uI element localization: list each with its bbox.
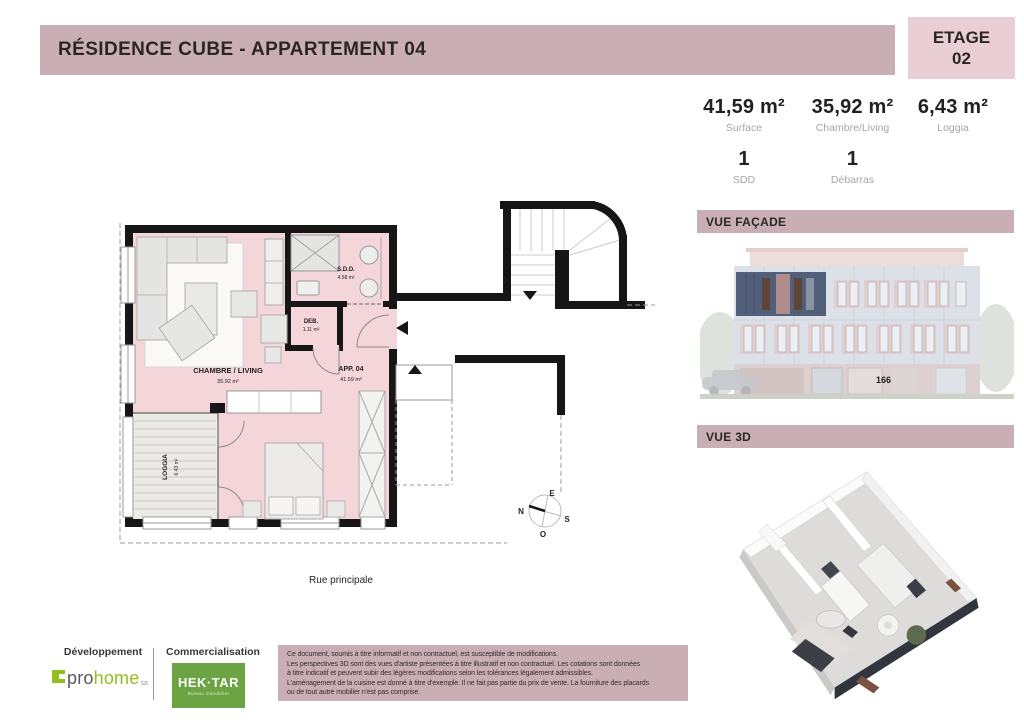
exterior-court (396, 365, 452, 485)
stat-debarras-label: Débarras (831, 174, 874, 186)
stat-debarras: 1 Débarras (800, 148, 905, 186)
room-app-area: 41.59 m² (340, 377, 362, 383)
vue3d-section-title: VUE 3D (697, 430, 751, 444)
stat-loggia-value: 6,43 m² (918, 96, 988, 119)
prohome-logo-home: home (94, 668, 140, 689)
facade-ground-floor: 166 (734, 364, 980, 394)
wardrobe (359, 391, 385, 517)
stat-surface-value: 41,59 m² (703, 96, 785, 119)
floor-badge-label: ETAGE (933, 27, 990, 48)
hektar-logo-text: HEK·TAR (178, 675, 239, 690)
corridor-area (389, 301, 557, 357)
floor-plan: CHAMBRE / LIVING 35.92 m² S.D.D. 4.58 m²… (115, 195, 655, 595)
room-loggia-area: 6.43 m² (174, 458, 180, 475)
floor-plan-svg: CHAMBRE / LIVING 35.92 m² S.D.D. 4.58 m²… (115, 195, 655, 595)
stat-surface: 41,59 m² Surface (688, 96, 800, 134)
room-sdd-name: S.D.D. (337, 267, 355, 273)
dining-table-3d (816, 611, 845, 629)
stat-surface-label: Surface (726, 122, 762, 134)
stats-row-counts: 1 SDD 1 Débarras (688, 148, 1018, 186)
stat-chambre-label: Chambre/Living (816, 122, 890, 134)
room-loggia-name: LOGGIA (162, 454, 169, 480)
room-living-area: 35.92 m² (217, 379, 239, 385)
commercialisation-label: Commercialisation (166, 646, 252, 658)
stat-sdd-label: SDD (733, 174, 755, 186)
compass-s: S (564, 515, 570, 524)
compass-icon: E N S O (518, 489, 570, 539)
page: RÉSIDENCE CUBE - APPARTEMENT 04 ETAGE 02… (0, 0, 1024, 724)
compass-e: E (549, 489, 555, 498)
header-bar: RÉSIDENCE CUBE - APPARTEMENT 04 (40, 25, 895, 75)
stat-chambre-value: 35,92 m² (812, 96, 894, 119)
floor-slab (743, 472, 976, 688)
facade-section-title: VUE FAÇADE (697, 215, 786, 229)
hektar-logo-subtext: Bureau Immobilier (188, 691, 230, 696)
street-number: 166 (876, 375, 891, 385)
facade-section-bar: VUE FAÇADE (697, 210, 1014, 233)
facade-illustration: 166 (700, 236, 1014, 422)
stat-chambre: 35,92 m² Chambre/Living (800, 96, 905, 134)
vue3d-section-bar: VUE 3D (697, 425, 1014, 448)
surface-stats: 41,59 m² Surface 35,92 m² Chambre/Living… (688, 96, 1018, 186)
room-deb-area: 1.11 m² (303, 327, 320, 333)
room-living-name: CHAMBRE / LIVING (193, 366, 263, 375)
facade-windows-lower (740, 324, 970, 354)
page-title: RÉSIDENCE CUBE - APPARTEMENT 04 (40, 39, 426, 61)
room-deb-name: DEB. (304, 319, 319, 325)
room-sdd-area: 4.58 m² (338, 275, 355, 281)
floor-badge: ETAGE 02 (908, 17, 1015, 79)
stat-loggia-label: Loggia (937, 122, 969, 134)
floor-badge-value: 02 (952, 48, 971, 69)
street-label: Rue principale (309, 575, 373, 586)
prohome-logo-pro: pro (67, 668, 94, 689)
facade-svg: 166 (700, 236, 1014, 422)
facade-windows-upper (834, 280, 966, 308)
disclaimer-box: Ce document, soumis à titre informatif e… (278, 645, 688, 701)
prohome-logo-icon (52, 670, 65, 683)
hektar-logo: HEK·TAR Bureau Immobilier (172, 663, 245, 708)
footer-divider (153, 648, 154, 700)
prohome-logo-suffix: sa (140, 680, 147, 687)
vue3d-render (716, 451, 998, 715)
development-label: Développement (58, 646, 148, 658)
compass-n: N (518, 507, 524, 516)
plant-3d (907, 625, 926, 644)
vue3d-svg (716, 451, 998, 715)
compass-o: O (540, 530, 546, 539)
stat-loggia: 6,43 m² Loggia (905, 96, 1001, 134)
stat-sdd-value: 1 (738, 148, 749, 171)
room-app-name: APP. 04 (338, 366, 363, 373)
prohome-logo: pro home sa (52, 668, 148, 689)
highlighted-apartment-block (736, 272, 826, 316)
stats-row-areas: 41,59 m² Surface 35,92 m² Chambre/Living… (688, 96, 1018, 134)
stat-sdd: 1 SDD (688, 148, 800, 186)
ground-strip (700, 394, 1014, 399)
stat-debarras-value: 1 (847, 148, 858, 171)
